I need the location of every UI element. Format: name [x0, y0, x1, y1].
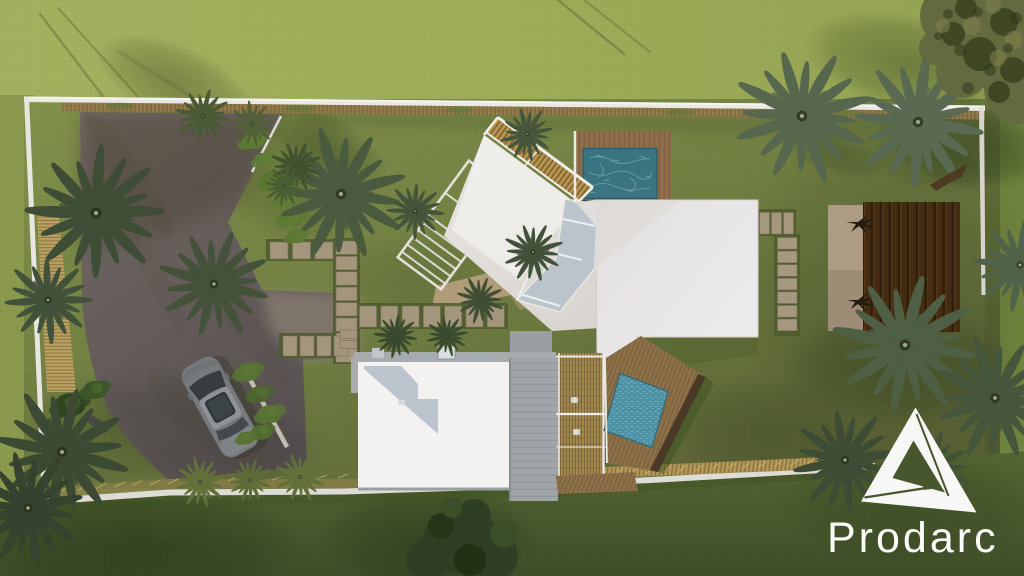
svg-text:Prodarc: Prodarc: [827, 514, 999, 562]
